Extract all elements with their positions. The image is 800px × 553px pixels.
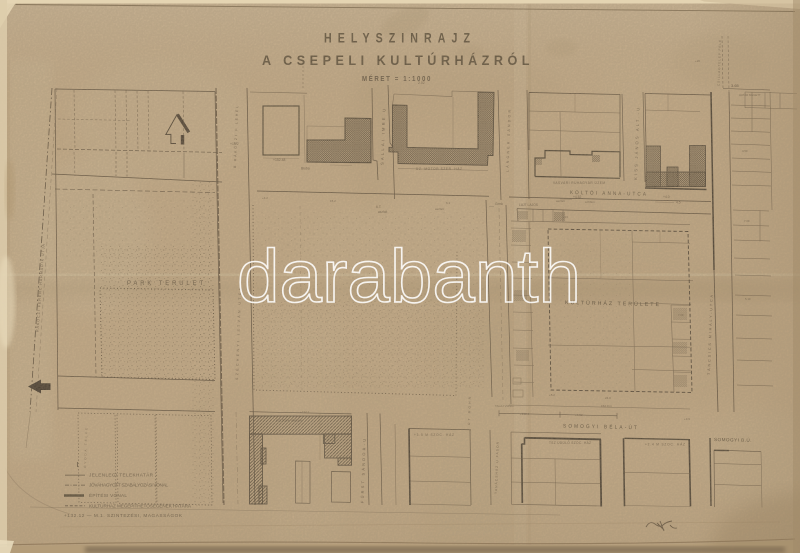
svg-text:darabanth: darabanth bbox=[237, 234, 581, 318]
